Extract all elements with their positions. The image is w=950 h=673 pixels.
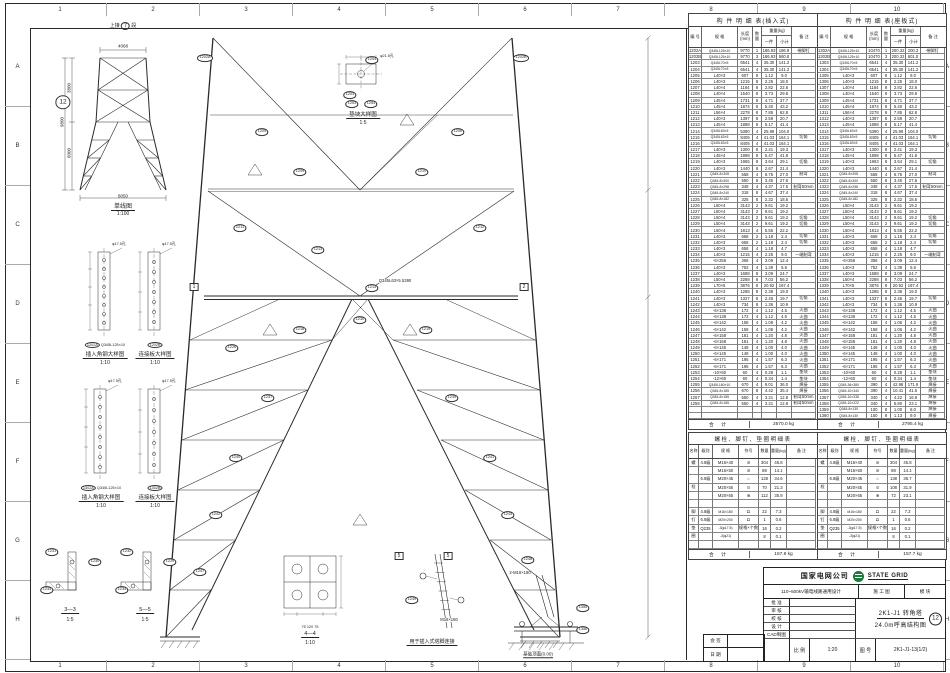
table-cell: [916, 516, 945, 524]
table-cell: Q235: [699, 525, 713, 533]
col-length: 长度(mm): [738, 27, 753, 47]
table-row: [689, 413, 817, 419]
table-cell: [828, 500, 842, 508]
grid-number: 2: [107, 3, 200, 16]
foot-detail: [498, 575, 588, 657]
table-cell: [818, 492, 828, 500]
section-scale: 1:5: [142, 617, 149, 623]
drawing-title: 2K1-J1 转角塔 24.0m呼高结构图 12: [856, 599, 945, 639]
table-cell: [888, 500, 900, 508]
grid-letter: B: [5, 107, 30, 186]
grid-letter: F: [5, 423, 30, 502]
table-cell: 22: [888, 508, 900, 516]
table-row: M16×50⊘8814.1: [818, 467, 946, 475]
table-cell: ⊗: [739, 492, 759, 500]
table-cell: 脚: [818, 508, 828, 516]
col-qty: 数量: [753, 27, 762, 47]
grid-number: 3: [200, 3, 293, 16]
table-cell: 1.13: [891, 413, 906, 419]
plate-detail-4-4: [276, 550, 346, 622]
table-cell: M16×180: [842, 508, 868, 516]
table-cell: 4.8级: [699, 459, 713, 467]
table-cell: [787, 475, 816, 483]
table-row: 6.8级M20×45○12834.6: [689, 475, 817, 483]
table-cell: 8: [888, 533, 900, 541]
side-label: 日 期: [704, 648, 728, 661]
table-cell: 6.8级: [828, 516, 842, 524]
grid-number: 1: [14, 660, 107, 671]
grid-letter: H: [5, 581, 30, 660]
table-cell: 21.3: [771, 484, 787, 492]
drawing-sheet: 1 2 3 4 5 6 7 8 9 10 1 2 3 4 5 6 7 8 9 1…: [0, 0, 950, 673]
col-spec: 规 格: [831, 27, 867, 47]
table-cell: [689, 492, 699, 500]
side-label: 会 签: [704, 635, 728, 647]
table-cell: [713, 500, 739, 508]
table-header: 编 号 规 格 长度(mm) 数量 重量(kg) 一件小计 备 注: [818, 27, 946, 48]
plate-dims: 75 120 75: [302, 625, 319, 629]
company-name-en: State Grid: [868, 573, 908, 580]
table-cell: ○: [868, 475, 888, 483]
table-cell: M16×50: [842, 467, 868, 475]
table-cell: [739, 533, 759, 541]
bolt-table-insert-type: 螺栓、脚钉、垫圈明细表 名称级别规 格符号数量重量(kg)备 注 螺4.8级M1…: [688, 432, 818, 560]
table-cell: M16×50: [713, 467, 739, 475]
table-row: 脚4.8级M16×180Ω227.3: [818, 508, 946, 516]
table-title: 螺栓、脚钉、垫圈明细表: [818, 433, 946, 445]
bolt-table-baseplate-type: 螺栓、脚钉、垫圈明细表 名称级别规 格符号数量重量(kg)备 注 螺4.8级M1…: [817, 432, 947, 560]
table-cell: [900, 500, 916, 508]
table-total: 合 计157.8 kg: [689, 549, 817, 559]
table-row: 6.8级M20×45○13836.7: [818, 475, 946, 483]
connect-above-note: 上接 7 段: [110, 22, 137, 30]
table-cell: [842, 500, 868, 508]
table-cell: [699, 467, 713, 475]
table-cell: 焊接: [921, 413, 945, 419]
table-row: [689, 541, 817, 549]
dim-lower: 6000: [67, 148, 72, 158]
table-row: M20×65⊗7223.1: [818, 492, 946, 500]
table-cell: 圈: [818, 533, 828, 541]
table-cell: Ω: [868, 508, 888, 516]
table-title: 构 件 明 细 表(插入式): [689, 14, 817, 27]
table-cell: M20×200: [713, 516, 739, 524]
company-name: 国家电网公司: [801, 571, 849, 581]
table-cell: 36.7: [900, 475, 916, 483]
table-row: M20×65⊗11235.9: [689, 492, 817, 500]
table-cell: [916, 459, 945, 467]
table-cell: 128: [759, 475, 771, 483]
sign-label: 批 准: [764, 599, 790, 607]
plate-scale: 1:10: [305, 640, 315, 646]
table-cell: 138: [888, 475, 900, 483]
number-label: 图 号: [856, 639, 876, 661]
grid-letter: D: [5, 265, 30, 344]
table-cell: 7.3: [771, 508, 787, 516]
table-cell: [842, 541, 868, 549]
table-row: [818, 500, 946, 508]
detail-scale: 1:10: [150, 360, 160, 366]
table-cell: ⊘: [739, 459, 759, 467]
table-cell: 16: [759, 525, 771, 533]
sign-label: 审 核: [764, 607, 790, 615]
table-cell: 23.1: [900, 492, 916, 500]
sheet-circle-number: 12: [929, 612, 942, 625]
table-cell: 31.9: [900, 484, 916, 492]
table-cell: 14.1: [900, 467, 916, 475]
hole-note: φ17.5孔: [108, 379, 122, 384]
project-row: 110~500kV输电线路通用设计 施 工 图 模 块: [764, 585, 945, 599]
table-cell: [699, 533, 713, 541]
table-cell: [702, 413, 738, 419]
drawing-title-line1: 2K1-J1 转角塔: [877, 608, 925, 619]
col-no: 编 号: [689, 27, 702, 47]
table-cell: [828, 467, 842, 475]
table-cell: Q345-8×130: [831, 413, 867, 419]
dim-top: 4068: [118, 44, 128, 49]
table-cell: 4.8级: [828, 508, 842, 516]
table-cell: [916, 508, 945, 516]
table-cell: [868, 541, 888, 549]
plate-caption: 4—4: [301, 631, 319, 638]
table-cell: 规格×个数: [739, 525, 759, 533]
table-cell: [753, 413, 762, 419]
table-cell: [689, 475, 699, 483]
table-cell: [689, 467, 699, 475]
table-cell: [868, 533, 888, 541]
grid-number: 6: [479, 3, 572, 16]
table-cell: ○: [739, 475, 759, 483]
table-cell: M16×180: [713, 508, 739, 516]
table-cell: [787, 533, 816, 541]
table-cell: Ω: [868, 516, 888, 524]
part-label: 1302A Q345L125×10: [81, 486, 121, 490]
table-cell: 108: [888, 484, 900, 492]
table-cell: [787, 484, 816, 492]
table-cell: 圈: [689, 533, 699, 541]
sign-label: CAD制图: [764, 631, 790, 639]
dim-total: 9800: [60, 117, 65, 127]
table-cell: 6.8级: [699, 475, 713, 483]
table-cell: 72: [888, 492, 900, 500]
table-cell: 14.1: [771, 467, 787, 475]
table-cell: ⊘: [739, 467, 759, 475]
table-row: 1360Q345-8×13015081.139.0焊接: [818, 413, 946, 419]
table-cell: 7.3: [900, 508, 916, 516]
table-total: 合 计2795.4 kg: [818, 419, 946, 429]
table-cell: 8: [759, 533, 771, 541]
single-line-caption: 单线图: [111, 201, 135, 211]
table-header: 编 号 规 格 长度(mm) 数量 重量(kg) 一件小计 备 注: [689, 27, 817, 48]
table-cell: [787, 459, 816, 467]
table-row: 螺4.8级M16×40⊘30445.8: [818, 459, 946, 467]
table-cell: [739, 541, 759, 549]
table-cell: [787, 500, 816, 508]
grid-number: 4: [293, 3, 386, 16]
strip-detail-1: [82, 246, 128, 341]
single-line-scale: 1:100: [117, 211, 130, 217]
sign-value: [790, 599, 856, 607]
table-cell: [713, 541, 739, 549]
table-cell: [916, 541, 945, 549]
table-cell: 35.9: [771, 492, 787, 500]
stage-label: 施 工 图: [859, 585, 905, 598]
table-row: [818, 541, 946, 549]
table-cell: M20×55: [842, 484, 868, 492]
side-value: [728, 635, 764, 647]
hole-note: φ17.5孔: [112, 242, 126, 247]
grid-letter: G: [5, 502, 30, 581]
table-body: 1302AQ345L125×10104701200.32200.3带脚钉1302…: [818, 48, 946, 419]
table-cell: M20×55: [713, 484, 739, 492]
table-cell: [787, 516, 816, 524]
table-cell: Ω: [739, 516, 759, 524]
project-title: 110~500kV输电线路通用设计: [764, 585, 859, 598]
sign-value: [790, 607, 856, 615]
section-detail-3-3: [40, 546, 100, 604]
sign-value: [790, 631, 856, 639]
col-spec: 规 格: [702, 27, 738, 47]
table-cell: [828, 541, 842, 549]
table-cell: [888, 541, 900, 549]
table-row: 螺4.8级M16×40⊘30445.8: [689, 459, 817, 467]
col-weight: 重量(kg) 一件小计: [762, 27, 792, 47]
section-caption: 3—3: [61, 607, 79, 614]
table-row: 圈-3(φ21)80.1: [818, 533, 946, 541]
grid-number: 7: [572, 3, 665, 16]
table-cell: [916, 525, 945, 533]
table-cell: 8: [882, 413, 891, 419]
table-cell: 垫: [689, 525, 699, 533]
table-cell: [916, 475, 945, 483]
table-cell: [916, 533, 945, 541]
table-cell: [916, 467, 945, 475]
table-cell: 规格×个数: [868, 525, 888, 533]
table-cell: [759, 541, 771, 549]
table-cell: M20×200: [842, 516, 868, 524]
table-cell: 0.2: [900, 525, 916, 533]
table-divider-line: [686, 28, 687, 660]
parts-table-baseplate-type: 构 件 明 细 表(座板式) 编 号 规 格 长度(mm) 数量 重量(kg) …: [817, 13, 947, 430]
table-row: 垫Q235-3(φ17.5)规格×个数160.2: [689, 525, 817, 533]
table-row: 钉6.8级M20×200Ω10.6: [689, 516, 817, 524]
table-cell: 0.6: [900, 516, 916, 524]
table-cell: ⊗: [868, 492, 888, 500]
table-row: 栓M20×55⊙7021.3: [689, 484, 817, 492]
table-cell: 112: [759, 492, 771, 500]
table-cell: 1360: [818, 413, 831, 419]
table-cell: [777, 413, 792, 419]
table-cell: [771, 541, 787, 549]
grid-letter: A: [5, 28, 30, 107]
table-cell: [916, 484, 945, 492]
table-row: 垫Q235-3(φ17.5)规格×个数160.2: [818, 525, 946, 533]
table-cell: 304: [759, 459, 771, 467]
col-no: 编 号: [818, 27, 831, 47]
table-row: 钉6.8级M20×200Ω10.6: [818, 516, 946, 524]
col-note: 备 注: [792, 27, 816, 47]
table-cell: [699, 541, 713, 549]
table-cell: 88: [759, 467, 771, 475]
table-cell: [828, 492, 842, 500]
table-cell: M20×65: [842, 492, 868, 500]
col-length: 长度(mm): [867, 27, 882, 47]
ladder-caption: 用于插入式塔脚连接: [406, 638, 457, 646]
table-cell: [828, 484, 842, 492]
table-cell: 45.8: [900, 459, 916, 467]
sign-label: 设 计: [764, 623, 790, 631]
detail-scale: 1:10: [96, 503, 106, 509]
table-cell: [699, 500, 713, 508]
grid-letter: E: [5, 344, 30, 423]
table-cell: [818, 467, 828, 475]
table-cell: 4.8级: [699, 508, 713, 516]
strip-detail-3: [78, 383, 124, 483]
table-cell: 88: [888, 467, 900, 475]
table-cell: [818, 475, 828, 483]
side-value: [728, 648, 764, 661]
table-row: [689, 500, 817, 508]
table-cell: [787, 492, 816, 500]
table-body: 螺4.8级M16×40⊘30445.8M16×50⊘8814.16.8级M20×…: [689, 459, 817, 549]
scale-label: 比 例: [790, 639, 810, 661]
table-cell: 螺: [818, 459, 828, 467]
table-cell: 1: [759, 516, 771, 524]
detail-caption: 插入角钢大样图: [79, 493, 124, 502]
table-cell: [787, 541, 816, 549]
company-row: 国家电网公司 State Grid: [764, 568, 945, 585]
table-cell: [689, 413, 702, 419]
table-cell: 150: [867, 413, 882, 419]
table-cell: [792, 413, 816, 419]
table-header: 名称级别规 格符号数量重量(kg)备 注: [689, 445, 817, 459]
table-cell: [699, 492, 713, 500]
table-cell: 栓: [689, 484, 699, 492]
table-total: 合 计2570.0 kg: [689, 419, 817, 429]
table-cell: [787, 467, 816, 475]
dim-upper: 3800: [67, 83, 72, 93]
table-cell: ⊙: [868, 484, 888, 492]
drawing-title-line2: 24.0m呼高结构图: [873, 619, 929, 630]
table-cell: 16: [888, 525, 900, 533]
section-circle: 7: [121, 22, 130, 30]
table-cell: [699, 484, 713, 492]
scale-number-row: 比 例 1:20 图 号 2K1-J1-13(1/2): [764, 639, 945, 661]
table-cell: 9.0: [906, 413, 921, 419]
signoff-strip: 会 签 日 期: [703, 634, 765, 662]
section-scale: 1:5: [67, 617, 74, 623]
scale-value: 1:20: [810, 639, 856, 661]
table-cell: [771, 500, 787, 508]
table-cell: ⊙: [739, 484, 759, 492]
table-cell: [900, 541, 916, 549]
sign-label: 校 核: [764, 615, 790, 623]
drawing-number: 2K1-J1-13(1/2): [876, 639, 945, 661]
table-cell: [787, 508, 816, 516]
sign-value: [790, 615, 856, 623]
section-caption: 5—5: [136, 607, 154, 614]
grid-band-left: A B C D E F G H: [5, 28, 30, 660]
table-cell: -3(φ21): [713, 533, 739, 541]
signature-area: 批 准 审 核 校 核 设 计 CAD制图 2K1-J1 转角塔 24.0m呼高…: [764, 599, 945, 661]
table-cell: [828, 533, 842, 541]
table-cell: 栓: [818, 484, 828, 492]
col-weight: 重量(kg) 一件小计: [891, 27, 921, 47]
table-cell: [738, 413, 753, 419]
table-cell: 1: [888, 516, 900, 524]
table-cell: 0.6: [771, 516, 787, 524]
table-total: 合 计157.7 kg: [818, 549, 946, 559]
part-label: 1202A Q345L125×10: [85, 343, 125, 347]
table-cell: [762, 413, 777, 419]
table-cell: 钉: [818, 516, 828, 524]
state-grid-logo-icon: [853, 571, 864, 582]
table-cell: 螺: [689, 459, 699, 467]
table-cell: 6.8级: [828, 475, 842, 483]
table-cell: 0.2: [771, 525, 787, 533]
table-cell: 0.1: [900, 533, 916, 541]
table-title: 构 件 明 细 表(座板式): [818, 14, 946, 27]
table-cell: 4.8级: [828, 459, 842, 467]
table-cell: [787, 525, 816, 533]
blank-cell: [764, 639, 790, 661]
grid-letter: C: [5, 186, 30, 265]
table-cell: [759, 500, 771, 508]
table-cell: 304: [888, 459, 900, 467]
table-cell: M16×40: [713, 459, 739, 467]
sign-value: [790, 623, 856, 631]
table-cell: 0.1: [771, 533, 787, 541]
table-row: 圈-3(φ21)80.1: [689, 533, 817, 541]
table-cell: 6.8级: [699, 516, 713, 524]
table-cell: M16×40: [842, 459, 868, 467]
parts-table-insert-type: 构 件 明 细 表(插入式) 编 号 规 格 长度(mm) 数量 重量(kg) …: [688, 13, 818, 430]
table-cell: 34.6: [771, 475, 787, 483]
table-title: 螺栓、脚钉、垫圈明细表: [689, 433, 817, 445]
table-row: 脚4.8级M16×180Ω227.3: [689, 508, 817, 516]
detail-scale: 1:10: [100, 360, 110, 366]
table-cell: [739, 500, 759, 508]
table-cell: Ω: [739, 508, 759, 516]
table-cell: [818, 541, 828, 549]
grid-number: 1: [14, 3, 107, 16]
table-cell: ⊘: [868, 467, 888, 475]
table-cell: [818, 500, 828, 508]
table-row: 栓M20×55⊙10831.9: [818, 484, 946, 492]
table-cell: M20×45: [713, 475, 739, 483]
dim-bottom: 8050: [118, 194, 128, 199]
table-cell: -3(φ21): [842, 533, 868, 541]
col-qty: 数量: [882, 27, 891, 47]
table-cell: 钉: [689, 516, 699, 524]
table-row: M16×50⊘8814.1: [689, 467, 817, 475]
table-cell: Q235: [828, 525, 842, 533]
table-cell: 70: [759, 484, 771, 492]
table-cell: -3(φ17.5): [713, 525, 739, 533]
table-header: 名称级别规 格符号数量重量(kg)备 注: [818, 445, 946, 459]
title-block: 国家电网公司 State Grid 110~500kV输电线路通用设计 施 工 …: [763, 567, 946, 662]
table-cell: 45.8: [771, 459, 787, 467]
col-note: 备 注: [921, 27, 945, 47]
table-body: 螺4.8级M16×40⊘30445.8M16×50⊘8814.16.8级M20×…: [818, 459, 946, 549]
table-cell: 22: [759, 508, 771, 516]
table-cell: [868, 500, 888, 508]
table-cell: [916, 500, 945, 508]
table-cell: -3(φ17.5): [842, 525, 868, 533]
ladder-detail: [393, 548, 468, 636]
table-body: 1202AQ345L125×1097701186.93186.9带脚钉1202B…: [689, 48, 817, 419]
table-cell: 脚: [689, 508, 699, 516]
